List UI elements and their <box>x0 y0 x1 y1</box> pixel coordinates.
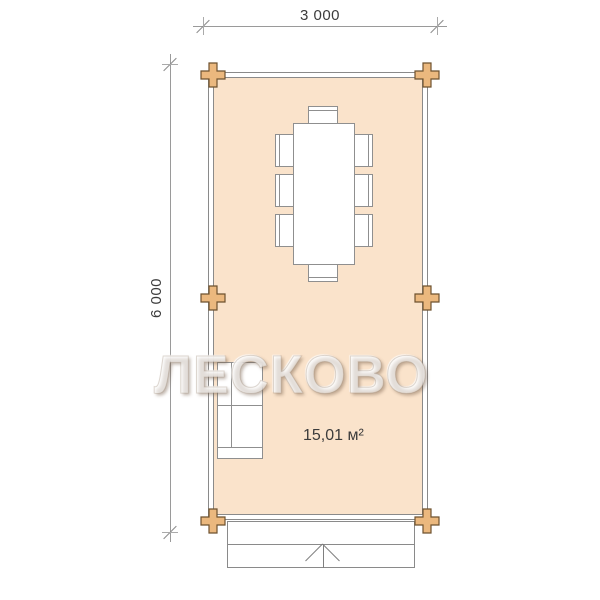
chair <box>308 106 338 124</box>
porch-steps <box>227 521 415 568</box>
chair-backrest <box>368 215 369 246</box>
chair <box>275 214 294 247</box>
chair-backrest <box>309 110 337 111</box>
chair <box>354 214 373 247</box>
extension-line <box>162 64 178 65</box>
chair-backrest <box>279 175 280 206</box>
chair <box>275 134 294 167</box>
chair-backrest <box>279 215 280 246</box>
cabinet-divider <box>218 405 262 406</box>
chair-backrest <box>279 135 280 166</box>
timber-joint-icon <box>200 508 226 534</box>
timber-joint-icon <box>414 62 440 88</box>
chair-backrest <box>368 175 369 206</box>
timber-joint-icon <box>414 285 440 311</box>
dining-table <box>293 123 355 265</box>
timber-joint-icon <box>414 508 440 534</box>
chair <box>354 174 373 207</box>
room-area-label: 15,01 м² <box>303 427 364 445</box>
timber-joint-icon <box>200 285 226 311</box>
kitchen-cabinet <box>217 362 263 459</box>
extension-line <box>437 17 438 35</box>
chair <box>275 174 294 207</box>
floor-plan-canvas: 3 000 6 000 15,01 <box>0 0 600 600</box>
cabinet-divider <box>231 363 232 447</box>
width-dimension-label: 3 000 <box>270 7 370 24</box>
timber-joint-icon <box>200 62 226 88</box>
chair <box>354 134 373 167</box>
chair-backrest <box>309 277 337 278</box>
dimension-line <box>170 54 171 542</box>
chair-backrest <box>368 135 369 166</box>
cabinet-divider <box>218 447 262 448</box>
chair <box>308 264 338 282</box>
extension-line <box>203 17 204 35</box>
dimension-line <box>193 26 447 27</box>
height-dimension-label: 6 000 <box>148 268 168 328</box>
extension-line <box>162 532 178 533</box>
